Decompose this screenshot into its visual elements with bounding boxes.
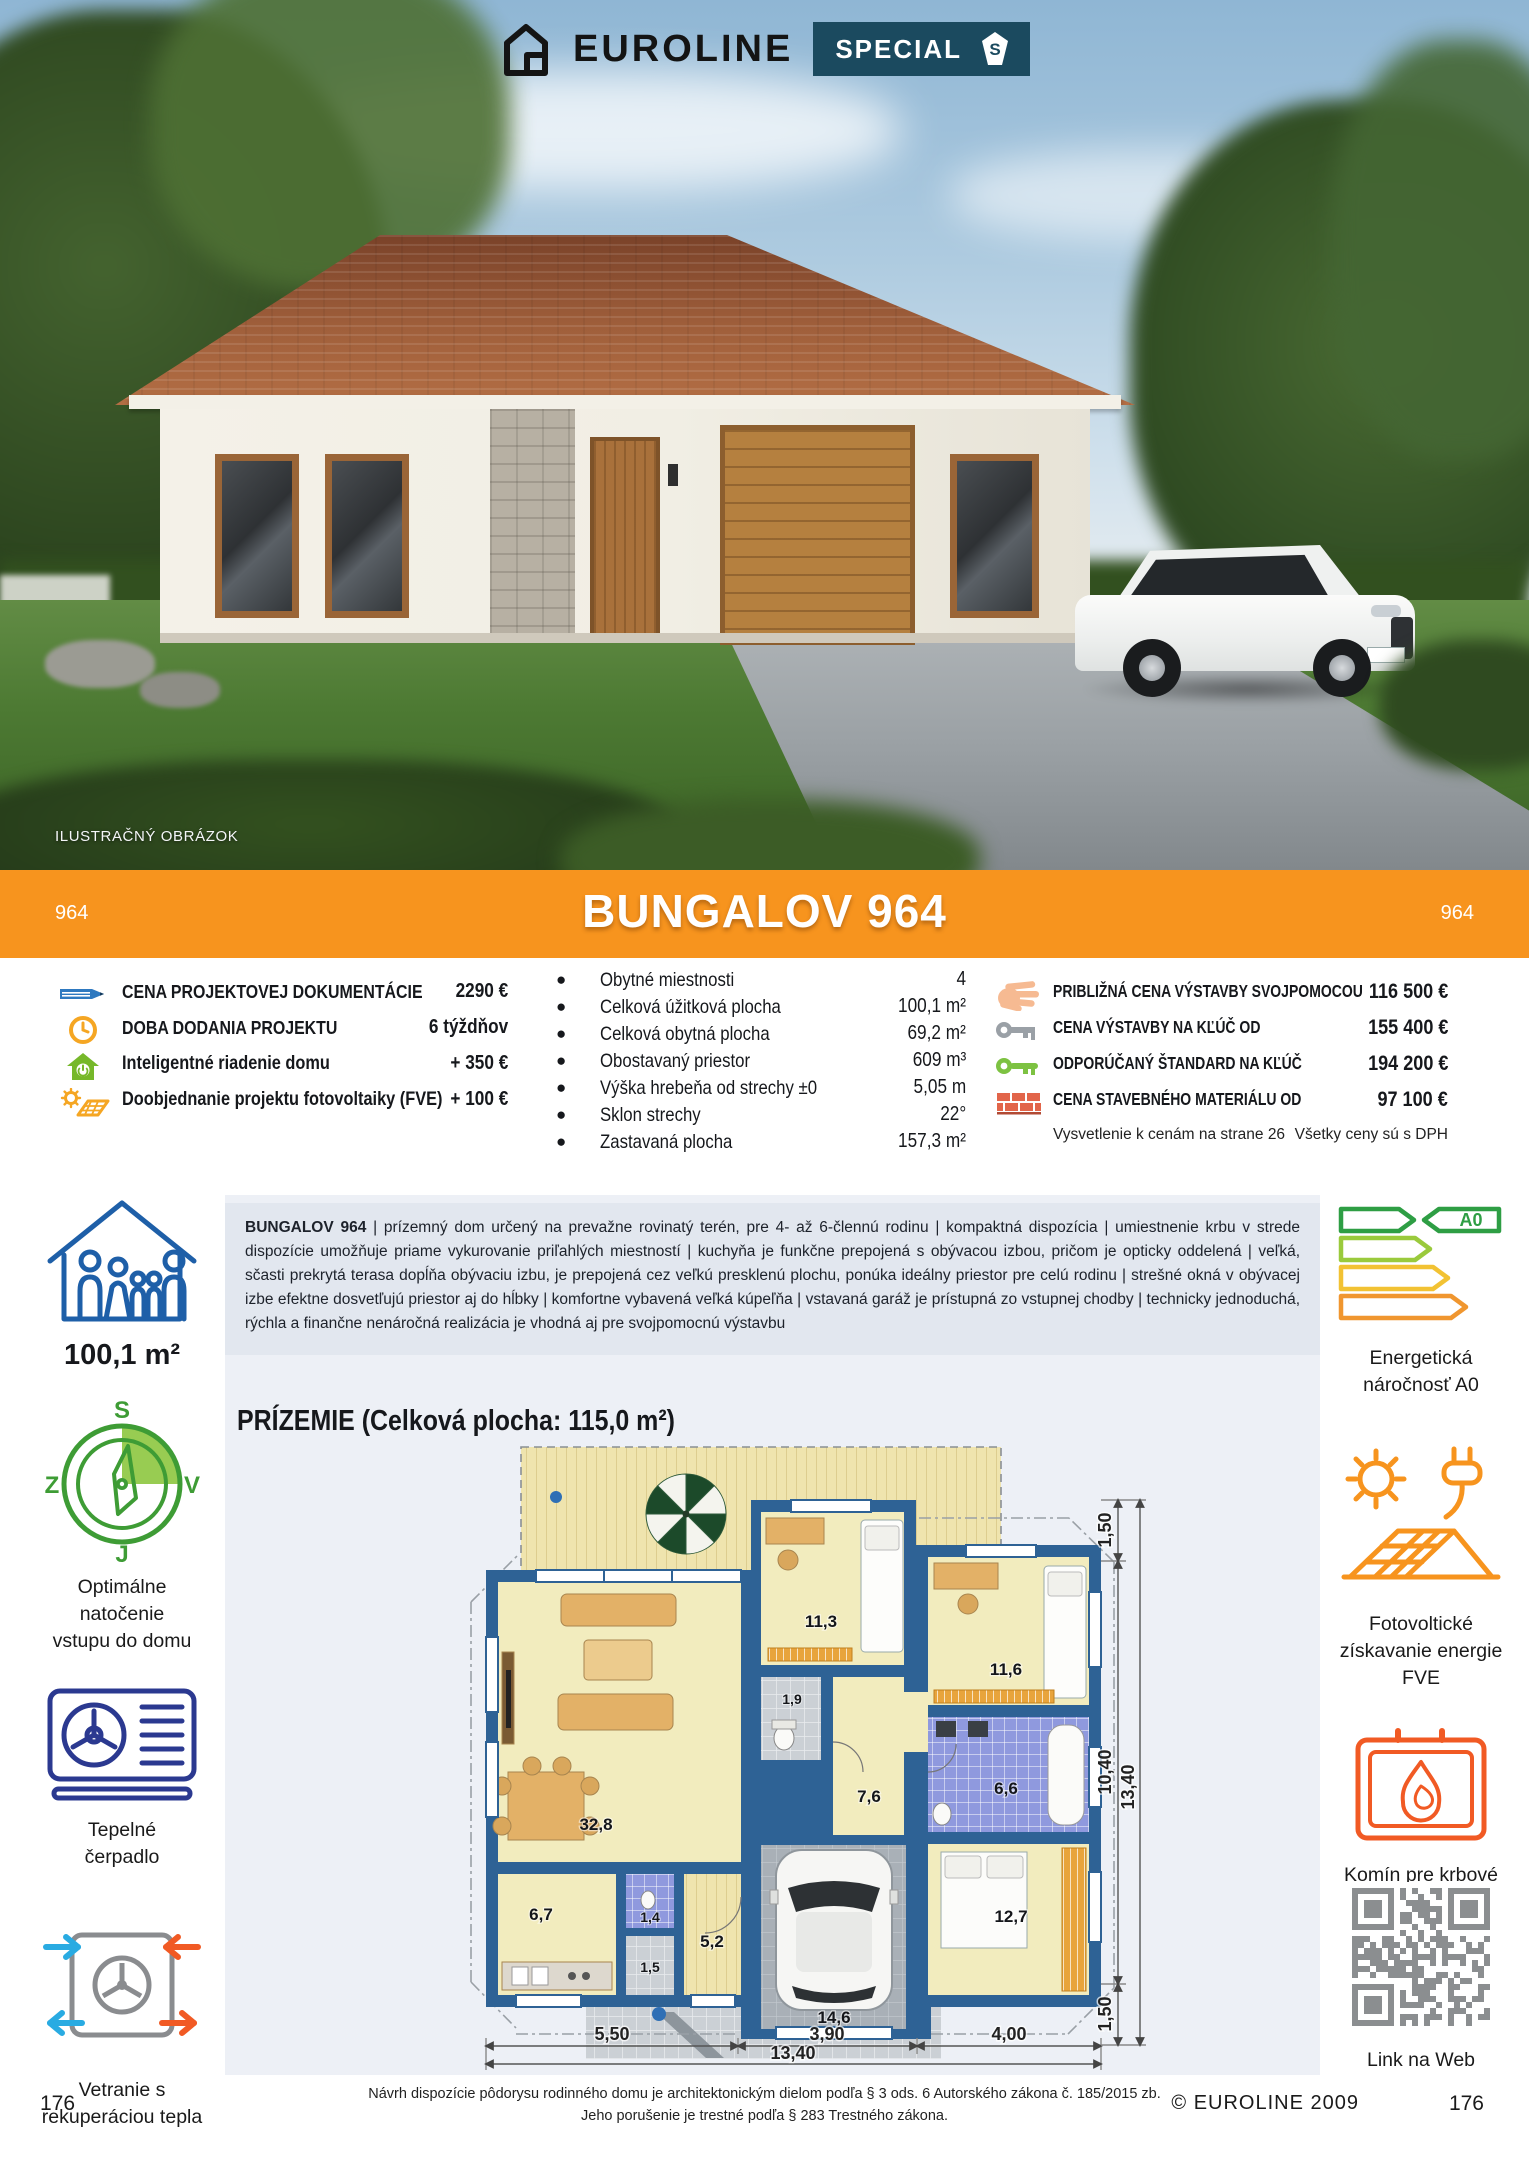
floor-title: PRÍZEMIE (Celková plocha: 115,0 m²) — [237, 1405, 746, 1438]
house-roof — [115, 235, 1135, 405]
sink — [936, 1721, 956, 1737]
room-area-bathroom: 6,6 — [994, 1779, 1018, 1798]
dim-bottom-1: 5,50 — [594, 2024, 629, 2044]
spec-row: ●Celková úžitková plocha100,1 m² — [556, 995, 966, 1022]
spec-value: 157,3 m² — [898, 1130, 966, 1153]
price-value: 155 400 € — [1368, 1016, 1448, 1040]
price-label: ODPORÚČANÝ ŠTANDARD NA KĽÚČ — [1053, 1053, 1302, 1074]
price-label: PRIBLIŽNÁ CENA VÝSTAVBY SVOJPOMOCOU — [1053, 981, 1363, 1002]
spec-label: Obostavaný priestor — [600, 1050, 750, 1073]
spec-value: 609 m³ — [912, 1049, 966, 1072]
room-area-entry: 5,2 — [700, 1932, 724, 1951]
qr-label: Link na Web — [1332, 2047, 1510, 2074]
heat-pump-label: Tepelnéčerpadlo — [36, 1817, 208, 1871]
room-area-wc2: 1,4 — [640, 1909, 660, 1925]
room-area-hall2: 1,5 — [640, 1959, 660, 1975]
desk — [934, 1563, 998, 1589]
room-wc — [761, 1677, 821, 1760]
fireplace-icon — [1346, 1726, 1496, 1848]
brand-bar: EUROLINE SPECIAL S — [0, 22, 1529, 76]
spec-label: Obytné miestnosti — [600, 969, 734, 992]
sink — [968, 1721, 988, 1737]
dim-bottom-total: 13,40 — [770, 2043, 815, 2063]
room-area-kitchen: 6,7 — [529, 1905, 553, 1924]
right-sidebar: A0 Energetickánáročnosť A0 Fotovoltickéz… — [1332, 1205, 1510, 1916]
compass-s: J — [115, 1541, 128, 1564]
price-note-left: Vysvetlenie k cenám na strane 26 — [1053, 1126, 1285, 1144]
house — [115, 235, 1135, 645]
dim-right-bottom: 1,50 — [1095, 1996, 1115, 2031]
energy-badge: A0 — [1459, 1210, 1482, 1230]
tree-right-top — [1330, 40, 1529, 460]
title-banner: 964 BUNGALOV 964 964 — [0, 870, 1529, 958]
pencil-icon — [60, 984, 106, 1004]
car — [1075, 545, 1425, 715]
photo-caption: ILUSTRAČNÝ OBRÁZOK — [55, 828, 238, 845]
wardrobe — [1062, 1848, 1086, 1991]
solar-addon-icon — [60, 1088, 110, 1118]
info-row: DOBA DODANIA PROJEKTU 6 týždňov — [60, 1014, 508, 1048]
brand-name: EUROLINE — [573, 28, 793, 71]
price-row: CENA STAVEBNÉHO MATERIÁLU OD 97 100 € — [995, 1086, 1448, 1120]
spec-row: ●Sklon strechy22° — [556, 1103, 966, 1130]
price-row: ODPORÚČANÝ ŠTANDARD NA KĽÚČ 194 200 € — [995, 1050, 1448, 1084]
car-wheel — [1123, 639, 1181, 697]
info-label: Doobjednanie projektu fotovoltaiky (FVE) — [122, 1089, 442, 1111]
downspout — [550, 1491, 562, 1503]
garage-car — [770, 1850, 898, 2010]
page-number-right: 176 — [1449, 2092, 1484, 2116]
dim-right-top: 1,50 — [1095, 1512, 1115, 1547]
car-wheel — [1313, 639, 1371, 697]
page-number-left: 176 — [40, 2092, 75, 2116]
house-photo: EUROLINE SPECIAL S ILUSTRAČNÝ OBRÁZOK — [0, 0, 1529, 870]
bricks-icon — [995, 1090, 1043, 1116]
clock-icon — [68, 1015, 98, 1045]
catalog-page: EUROLINE SPECIAL S ILUSTRAČNÝ OBRÁZOK 96… — [0, 0, 1529, 2160]
room-area-living: 32,8 — [579, 1815, 612, 1834]
bullet-icon: ● — [556, 997, 566, 1017]
bullet-icon: ● — [556, 970, 566, 990]
spec-row: ●Výška hrebeňa od strechy ±05,05 m — [556, 1076, 966, 1103]
spec-label: Celková obytná plocha — [600, 1023, 770, 1046]
entrance-door — [590, 437, 660, 643]
price-label: CENA STAVEBNÉHO MATERIÁLU OD — [1053, 1089, 1301, 1110]
wardrobe — [934, 1690, 1054, 1703]
price-value: 194 200 € — [1368, 1052, 1448, 1076]
compass-icon: S V J Z — [42, 1400, 202, 1564]
price-note-right: Všetky ceny sú s DPH — [1295, 1126, 1448, 1144]
special-gem-icon: S — [978, 31, 1012, 67]
window — [950, 454, 1039, 618]
compass-label: Optimálne natočenievstupu do domu — [36, 1574, 208, 1655]
svg-text:S: S — [989, 40, 1000, 59]
garage-door — [720, 425, 915, 645]
car-headlight — [1371, 605, 1401, 617]
house-plinth — [160, 633, 1090, 643]
compass-e: V — [184, 1472, 200, 1499]
chair — [958, 1594, 978, 1614]
info-row: Doobjednanie projektu fotovoltaiky (FVE)… — [60, 1086, 508, 1120]
toilet — [933, 1803, 951, 1825]
compass-n: S — [114, 1400, 130, 1424]
model-code-right: 964 — [1441, 902, 1474, 925]
spec-row: ●Zastavaná plocha157,3 m² — [556, 1130, 966, 1157]
page-title: BUNGALOV 964 — [0, 884, 1529, 938]
double-bed — [941, 1852, 1027, 1948]
radiator — [768, 1648, 852, 1661]
dim-right-mid: 10,40 — [1095, 1749, 1115, 1794]
spec-value: 100,1 m² — [898, 995, 966, 1018]
sofa — [558, 1694, 673, 1730]
spec-label: Sklon strechy — [600, 1104, 701, 1127]
hand-icon — [997, 981, 1043, 1011]
compass-w: Z — [45, 1472, 60, 1499]
price-value: 97 100 € — [1378, 1088, 1448, 1112]
copyright: © EUROLINE 2009 — [1171, 2092, 1359, 2115]
description: BUNGALOV 964 | prízemný dom určený na pr… — [225, 1203, 1320, 1355]
spec-row: ●Obytné miestnosti4 — [556, 968, 966, 995]
roof-fascia — [129, 395, 1121, 409]
dim-bottom-2: 3,90 — [809, 2024, 844, 2044]
room-area-wc: 1,9 — [782, 1691, 802, 1707]
price-row: PRIBLIŽNÁ CENA VÝSTAVBY SVOJPOMOCOU 116 … — [995, 978, 1448, 1012]
info-label: DOBA DODANIA PROJEKTU — [122, 1017, 337, 1039]
dim-bottom-3: 4,00 — [991, 2024, 1026, 2044]
energy-label-icon: A0 — [1335, 1205, 1507, 1327]
heat-pump-icon — [42, 1685, 202, 1805]
info-row: Inteligentné riadenie domu + 350 € — [60, 1050, 508, 1084]
info-value: 2290 € — [455, 980, 508, 1003]
house-wall — [160, 409, 1090, 635]
spec-value: 4 — [956, 968, 966, 991]
spec-label: Celková úžitková plocha — [600, 996, 781, 1019]
usable-area: 100,1 m² — [36, 1339, 208, 1372]
window — [325, 454, 409, 618]
spec-label: Výška hrebeňa od strechy ±0 — [600, 1077, 817, 1100]
sofa — [561, 1594, 676, 1626]
price-label: CENA VÝSTAVBY NA KĽÚČ OD — [1053, 1017, 1260, 1038]
rock — [140, 672, 220, 708]
description-body: | prízemný dom určený na prevažne rovina… — [245, 1219, 1300, 1332]
price-value: 116 500 € — [1369, 980, 1448, 1004]
key-gray-icon — [995, 1019, 1041, 1041]
bullet-icon: ● — [556, 1051, 566, 1071]
wall-lamp — [668, 464, 678, 486]
info-value: 6 týždňov — [429, 1016, 508, 1039]
price-row: CENA VÝSTAVBY NA KĽÚČ OD 155 400 € — [995, 1014, 1448, 1048]
room-area-bedroom1: 11,3 — [805, 1612, 837, 1631]
info-label: Inteligentné riadenie domu — [122, 1053, 330, 1075]
chair — [778, 1550, 798, 1570]
photovoltaic-icon — [1336, 1439, 1506, 1591]
downspout — [652, 2007, 666, 2021]
floor-plan: 32,8 11,3 11,6 1,9 7,6 6,6 6,7 1,4 1,5 5… — [356, 1442, 1166, 2070]
bullet-icon: ● — [556, 1105, 566, 1125]
key-green-icon — [995, 1055, 1041, 1077]
toilet — [774, 1726, 794, 1750]
room-area-bedroom3: 12,7 — [994, 1907, 1027, 1926]
special-label: SPECIAL — [835, 34, 962, 65]
left-sidebar: 100,1 m² S V J Z Optimálne natočenievstu… — [36, 1195, 208, 2131]
rock — [45, 640, 155, 688]
ventilation-icon — [42, 1905, 202, 2065]
info-value: + 350 € — [450, 1052, 508, 1075]
desk — [766, 1518, 824, 1544]
euroline-house-icon — [499, 22, 553, 76]
bullet-icon: ● — [556, 1132, 566, 1152]
bullet-icon: ● — [556, 1078, 566, 1098]
dim-right-total: 13,40 — [1118, 1764, 1138, 1809]
description-lead: BUNGALOV 964 — [245, 1219, 366, 1236]
special-badge: SPECIAL S — [813, 22, 1030, 76]
spec-row: ●Obostavaný priestor609 m³ — [556, 1049, 966, 1076]
family-house-icon — [42, 1195, 202, 1327]
info-label: CENA PROJEKTOVEJ DOKUMENTÁCIE — [122, 981, 423, 1003]
bathtub — [1048, 1725, 1084, 1825]
room-area-hall: 7,6 — [857, 1787, 881, 1806]
spec-label: Zastavaná plocha — [600, 1131, 732, 1154]
photovoltaic-label: Fotovoltickézískavanie energieFVE — [1332, 1611, 1510, 1692]
window — [215, 454, 299, 618]
spec-value: 5,05 m — [913, 1076, 966, 1099]
bullet-icon: ● — [556, 1024, 566, 1044]
shrub-right — [1380, 640, 1529, 770]
coffee-table — [584, 1640, 652, 1680]
parasol-table — [646, 1474, 726, 1554]
qr-code[interactable] — [1346, 1882, 1496, 2032]
spec-value: 69,2 m² — [908, 1022, 966, 1045]
energy-label: Energetickánáročnosť A0 — [1332, 1345, 1510, 1399]
room-hall — [833, 1677, 904, 1835]
spec-row: ●Celková obytná plocha69,2 m² — [556, 1022, 966, 1049]
toilet — [641, 1891, 655, 1909]
stone-pillar — [490, 409, 575, 635]
room-area-bedroom2: 11,6 — [990, 1660, 1022, 1679]
spec-value: 22° — [940, 1103, 966, 1126]
info-row: CENA PROJEKTOVEJ DOKUMENTÁCIE 2290 € — [60, 978, 508, 1012]
smart-home-icon — [66, 1051, 100, 1081]
info-value: + 100 € — [450, 1088, 508, 1111]
